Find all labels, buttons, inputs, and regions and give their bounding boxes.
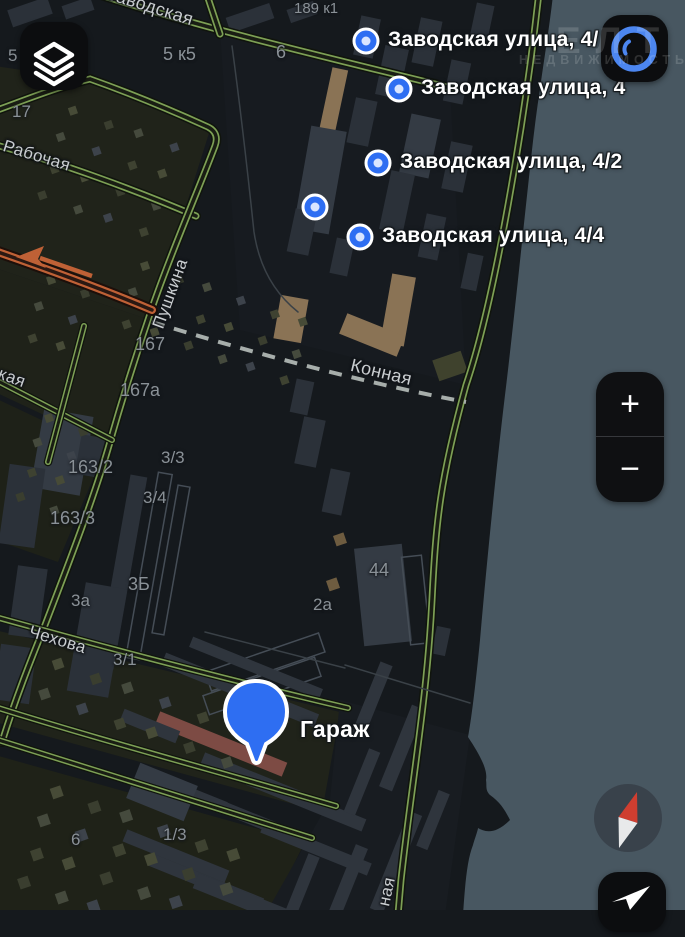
compass-button[interactable] bbox=[594, 784, 662, 852]
map-app: { "pins": { "items": [ {"label": "Заводс… bbox=[0, 0, 685, 910]
camera-ring-icon bbox=[601, 69, 668, 86]
compass-needle-icon bbox=[594, 839, 662, 856]
address-pin[interactable] bbox=[298, 190, 332, 224]
address-pin[interactable] bbox=[361, 146, 395, 180]
mirrors-camera-button[interactable] bbox=[601, 15, 668, 82]
locate-me-button[interactable] bbox=[598, 872, 666, 932]
garage-pin[interactable] bbox=[218, 672, 294, 768]
layers-button[interactable] bbox=[20, 22, 88, 90]
zoom-out-button[interactable]: − bbox=[596, 437, 664, 501]
zoom-in-button[interactable]: + bbox=[596, 372, 664, 436]
map-canvas[interactable] bbox=[0, 0, 685, 910]
zoom-panel: + − bbox=[596, 372, 664, 502]
address-pin[interactable] bbox=[343, 220, 377, 254]
address-pin[interactable] bbox=[349, 24, 383, 58]
address-pin[interactable] bbox=[382, 72, 416, 106]
navigate-arrow-icon bbox=[598, 919, 666, 936]
layers-icon bbox=[20, 77, 88, 94]
